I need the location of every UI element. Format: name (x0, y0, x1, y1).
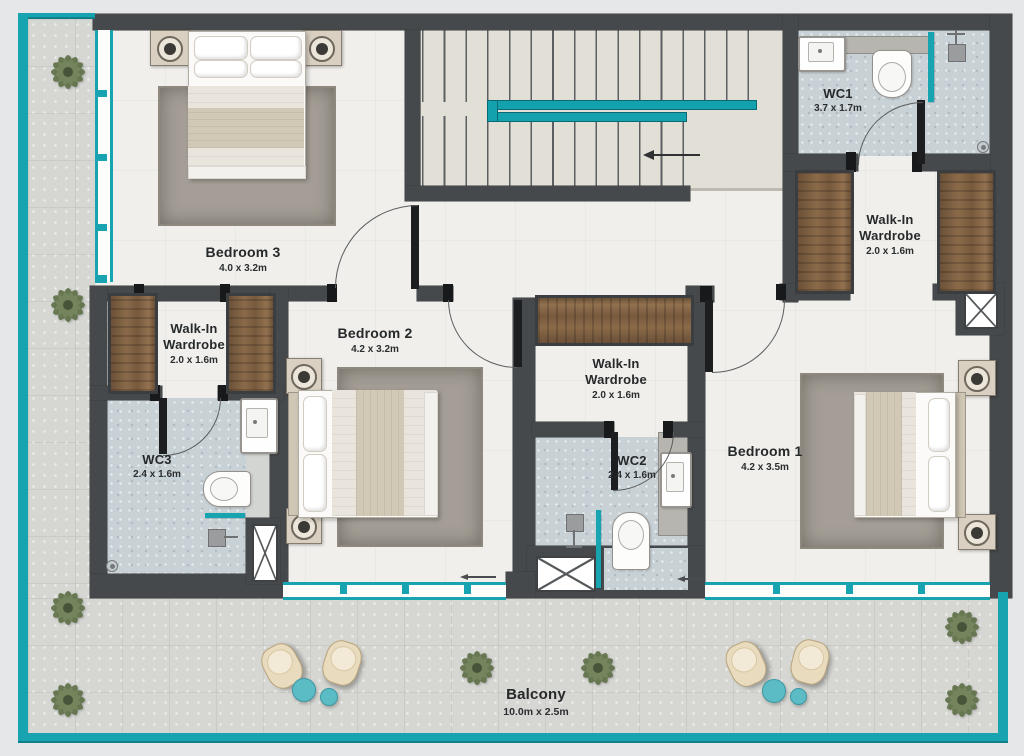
bedroom3-label: Bedroom 3 4.0 x 3.2m (163, 244, 323, 274)
bed-runner (188, 108, 304, 148)
slide-arrow (468, 576, 496, 578)
shaft-vent (536, 556, 596, 592)
boundary-wall (18, 13, 95, 19)
lamp-icon (309, 36, 335, 62)
stair-railing (487, 112, 687, 122)
drain-icon (977, 141, 989, 153)
room-name: Bedroom 1 (685, 443, 845, 461)
stair-treads-upper (422, 30, 755, 102)
room-name: Wardrobe (546, 372, 686, 388)
pillow (303, 454, 327, 512)
shower-head-icon (566, 514, 584, 532)
bedroom2-label: Bedroom 2 4.2 x 3.2m (295, 325, 455, 355)
side-table (762, 679, 786, 703)
wall (405, 30, 420, 200)
shower-pipe (566, 546, 582, 548)
slide-arrowhead (677, 576, 685, 582)
window-mullion (773, 582, 780, 594)
pillow (194, 36, 248, 60)
wall (506, 572, 535, 598)
room-name: Walk-In (820, 212, 960, 228)
plant-icon (935, 600, 989, 654)
door-jamb (846, 152, 856, 172)
window-mullion (95, 224, 107, 231)
shower-glass (928, 32, 934, 102)
window-mullion (95, 90, 107, 97)
room-name: WC2 (574, 453, 690, 469)
room-dims: 4.0 x 3.2m (163, 263, 323, 274)
stair-direction-arrowhead (643, 150, 654, 160)
room-dims: 3.7 x 1.7m (778, 103, 898, 114)
window-mullion (340, 582, 347, 594)
shower-head-icon (208, 529, 226, 547)
wc3-label: WC3 2.4 x 1.6m (99, 452, 215, 480)
lamp-icon (964, 366, 990, 392)
window (283, 582, 506, 600)
room-name: WC1 (778, 86, 898, 102)
room-name: Balcony (456, 686, 616, 705)
side-table (292, 678, 316, 702)
wardrobe-right-label: Walk-In Wardrobe 2.0 x 1.6m (820, 212, 960, 257)
door-jamb (776, 284, 786, 300)
pillow (928, 398, 950, 452)
window-mullion (95, 275, 107, 283)
boundary-wall (18, 13, 28, 743)
pillow (250, 60, 302, 78)
window-mullion (402, 582, 409, 594)
wall (532, 422, 614, 437)
wall (93, 14, 1012, 30)
slide-arrow (684, 578, 704, 580)
sink-drain (253, 420, 257, 424)
shower-pipe (573, 530, 575, 546)
sink-basin (246, 408, 268, 438)
slide-arrowhead (460, 574, 468, 580)
toilet-bowl (210, 477, 238, 501)
drain-icon (106, 560, 118, 572)
shower-glass (205, 513, 245, 518)
room-dims: 10.0m x 2.5m (456, 706, 616, 718)
lamp-icon (964, 520, 990, 546)
shower-pipe (947, 33, 965, 35)
stair-landing-edge (690, 188, 783, 191)
stair-railing (487, 100, 498, 122)
room-name: Bedroom 2 (295, 325, 455, 343)
shaft-vent (964, 292, 998, 329)
room-name: Wardrobe (124, 337, 264, 353)
room-name: Walk-In (124, 321, 264, 337)
wall (90, 286, 107, 598)
wall (671, 422, 705, 437)
shower-head-icon (948, 44, 966, 62)
window-mullion (918, 582, 925, 594)
plant-icon (41, 581, 95, 635)
wardrobe-left-label: Walk-In Wardrobe 2.0 x 1.6m (124, 321, 264, 366)
lamp-icon (157, 36, 183, 62)
bed-runner (356, 390, 404, 516)
bedroom1-label: Bedroom 1 4.2 x 3.5m (685, 443, 845, 473)
room-dims: 2.0 x 1.6m (546, 390, 686, 401)
wall (405, 186, 690, 201)
window-mullion (464, 582, 471, 594)
boundary-wall (18, 733, 1008, 743)
pillow (194, 60, 248, 78)
shower-pipe (224, 536, 238, 538)
window-mullion (846, 582, 853, 594)
side-table (320, 688, 338, 706)
wc2-label: WC2 2.4 x 1.6m (574, 453, 690, 481)
shaft-vent (252, 524, 278, 582)
plant-icon (41, 45, 95, 99)
wardrobe-mid-label: Walk-In Wardrobe 2.0 x 1.6m (546, 356, 686, 401)
room-dims: 4.2 x 3.2m (295, 344, 455, 355)
shower-glass (596, 510, 601, 588)
plant-icon (41, 278, 95, 332)
bed-fold (424, 392, 438, 516)
plant-icon (935, 673, 989, 727)
wardrobe-cabinet (535, 295, 694, 346)
pillow (303, 396, 327, 452)
side-table (790, 688, 807, 705)
room-dims: 2.4 x 1.6m (99, 469, 215, 480)
room-name: Bedroom 3 (163, 244, 323, 262)
room-dims: 2.0 x 1.6m (820, 246, 960, 257)
room-dims: 4.2 x 3.5m (685, 462, 845, 473)
lamp-icon (291, 364, 317, 390)
stair-railing (487, 100, 757, 110)
bed-fold (854, 394, 866, 516)
room-dims: 2.4 x 1.6m (574, 470, 690, 481)
sink-drain (818, 49, 822, 53)
pillow (928, 456, 950, 512)
pillow (250, 36, 302, 60)
room-dims: 2.0 x 1.6m (124, 355, 264, 366)
floor-plan: Bedroom 3 4.0 x 3.2m Bedroom 2 4.2 x 3.2… (0, 0, 1024, 756)
boundary-wall (998, 592, 1008, 743)
stair-direction-arrow (654, 154, 700, 156)
wc1-label: WC1 3.7 x 1.7m (778, 86, 898, 114)
window-mullion (95, 154, 107, 161)
room-name: Walk-In (546, 356, 686, 372)
wall (920, 154, 990, 171)
room-name: WC3 (99, 452, 215, 468)
balcony-label: Balcony 10.0m x 2.5m (456, 686, 616, 718)
toilet-bowl (618, 520, 644, 550)
room-name: Wardrobe (820, 228, 960, 244)
bed-runner (866, 392, 902, 516)
plant-icon (41, 673, 95, 727)
bed-fold (188, 166, 306, 179)
